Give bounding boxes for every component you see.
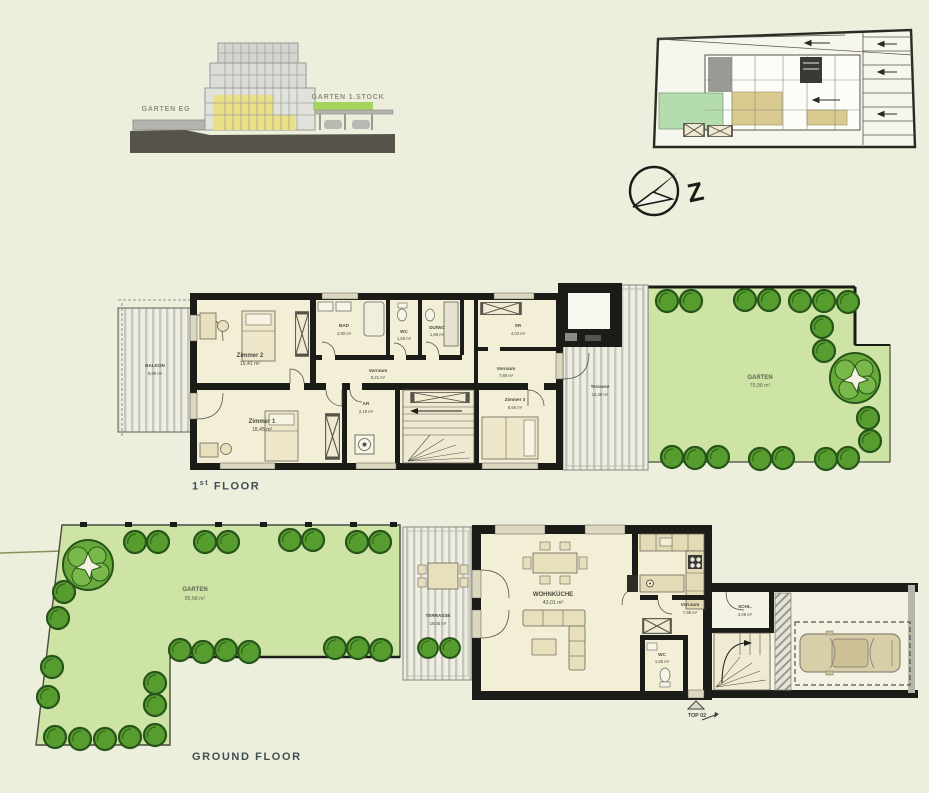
chair bbox=[418, 578, 426, 587]
garten-1stock-label: GARTEN 1.STOCK bbox=[312, 94, 385, 101]
bush-icon bbox=[758, 289, 780, 311]
entrance-marker: TOP 02 bbox=[688, 701, 719, 720]
bush-icon bbox=[440, 638, 460, 658]
ff-stairs bbox=[403, 390, 474, 463]
room-area: 7,89 m² bbox=[499, 373, 514, 378]
bush-icon bbox=[680, 290, 702, 312]
bush-icon bbox=[789, 290, 811, 312]
parked-car-silhouette bbox=[352, 120, 370, 129]
ff-balcony: BALKON 9,98 m² bbox=[118, 300, 192, 437]
ff-apartment: Zimmer 2 15,41 m² Zimmer 1 18,45 m² BAD … bbox=[190, 293, 589, 470]
shower bbox=[444, 302, 458, 346]
toilet bbox=[398, 309, 407, 321]
ground-floor-title: GROUND FLOOR bbox=[192, 751, 302, 763]
bush-icon bbox=[238, 641, 260, 663]
car-icon bbox=[800, 631, 900, 675]
carport-wing bbox=[313, 102, 393, 130]
bush-icon bbox=[656, 290, 678, 312]
chair bbox=[218, 321, 229, 332]
room-area: 1,88 m² bbox=[430, 332, 445, 337]
tree-icon bbox=[830, 353, 880, 403]
room-area: 43,01 m² bbox=[543, 600, 564, 606]
bush-icon bbox=[661, 446, 683, 468]
chair bbox=[523, 557, 531, 569]
north-letter: Z bbox=[684, 176, 706, 209]
site-storage-box bbox=[684, 124, 704, 137]
bush-icon bbox=[772, 447, 794, 469]
bush-icon bbox=[813, 340, 835, 362]
stair-void-box bbox=[412, 392, 467, 402]
bush-icon bbox=[194, 531, 216, 553]
bush-icon bbox=[749, 448, 771, 470]
room-label: Vorraum bbox=[681, 602, 700, 607]
bush-icon bbox=[857, 407, 879, 429]
chair bbox=[221, 444, 232, 455]
site-unit-highlight-2 bbox=[807, 110, 847, 125]
bush-icon bbox=[418, 638, 438, 658]
garten-eg-label: GARTEN EG bbox=[142, 106, 191, 113]
room-label: Terrasse bbox=[591, 384, 610, 389]
entrance-label: TOP 02 bbox=[688, 713, 706, 719]
sofa bbox=[523, 610, 585, 626]
room-label: Zimmer 1 bbox=[249, 419, 276, 425]
site-stair-core bbox=[800, 57, 822, 83]
room-area: 16,05 m² bbox=[430, 621, 447, 626]
room-area: 85,68 m² bbox=[185, 596, 206, 602]
unit-highlight-yellow bbox=[213, 95, 273, 130]
building-section-elevation: GARTEN EG GARTEN 1.STOCK bbox=[130, 35, 395, 155]
bush-icon bbox=[69, 728, 91, 750]
site-plan bbox=[645, 25, 925, 155]
bush-icon bbox=[811, 316, 833, 338]
bush-icon bbox=[192, 641, 214, 663]
bush-icon bbox=[684, 447, 706, 469]
room-label: Zimmer 3 bbox=[505, 397, 526, 402]
room-area: 3,08 m² bbox=[738, 612, 753, 617]
chair bbox=[560, 542, 570, 550]
room-area: 18,45 m² bbox=[252, 427, 273, 433]
bush-icon bbox=[94, 728, 116, 750]
sofa bbox=[569, 626, 585, 670]
room-area: 14,38 m² bbox=[592, 392, 609, 397]
wardrobe bbox=[643, 619, 671, 634]
bush-icon bbox=[41, 656, 63, 678]
ff-terrace: Terrasse 14,38 m² bbox=[558, 283, 648, 470]
room-area: 9,98 m² bbox=[148, 371, 163, 376]
room-label: SCHL. bbox=[738, 604, 752, 609]
site-unit-highlight bbox=[732, 92, 782, 125]
bush-icon bbox=[147, 531, 169, 553]
ground-floor-plan: GARTEN 85,68 m² bbox=[0, 515, 929, 770]
washbasin bbox=[647, 643, 657, 650]
ground-section bbox=[130, 130, 395, 153]
wardrobe bbox=[482, 303, 521, 315]
room-area: 8,66 m² bbox=[508, 405, 523, 410]
room-label: Vorraum bbox=[497, 366, 516, 371]
room-label: Vorraum bbox=[369, 368, 388, 373]
bush-icon bbox=[37, 686, 59, 708]
bush-icon bbox=[324, 637, 346, 659]
chair bbox=[540, 542, 550, 550]
gf-garden: GARTEN 85,68 m² bbox=[0, 522, 400, 750]
bush-icon bbox=[859, 430, 881, 452]
room-area: 9,21 m² bbox=[371, 375, 386, 380]
gf-terrace: TERRASSE 16,05 m² bbox=[403, 527, 472, 680]
bush-icon bbox=[279, 529, 301, 551]
bush-icon bbox=[144, 672, 166, 694]
room-area: 15,41 m² bbox=[240, 361, 261, 367]
driveway-ramp bbox=[775, 593, 791, 690]
parked-car-silhouette bbox=[324, 120, 342, 129]
north-arrow-light bbox=[633, 192, 672, 207]
site-gray-block bbox=[708, 57, 732, 92]
chair bbox=[540, 576, 550, 584]
wardrobe bbox=[326, 415, 340, 458]
north-compass: Z bbox=[620, 155, 730, 225]
bush-icon bbox=[124, 531, 146, 553]
bush-icon bbox=[815, 448, 837, 470]
gf-apartment: WOHNKÜCHE 43,01 m² bbox=[472, 525, 918, 720]
bush-icon bbox=[144, 694, 166, 716]
dining-table bbox=[533, 553, 577, 573]
bush-icon bbox=[734, 289, 756, 311]
roof-garden-bar bbox=[313, 102, 373, 110]
bush-icon bbox=[347, 637, 369, 659]
first-floor-title: 1st FLOOR bbox=[192, 480, 260, 493]
room-label: WC bbox=[400, 329, 408, 334]
bush-icon bbox=[369, 531, 391, 553]
desk bbox=[200, 313, 216, 339]
chair bbox=[579, 557, 587, 569]
room-area: 75,98 m² bbox=[750, 383, 771, 389]
bush-icon bbox=[346, 531, 368, 553]
room-label: SR bbox=[515, 323, 522, 328]
building-mass bbox=[205, 43, 315, 130]
site-storage-box bbox=[708, 125, 732, 136]
bush-icon bbox=[47, 607, 69, 629]
room-label: GARTEN bbox=[747, 375, 772, 381]
floorplan-sheet: GARTEN EG GARTEN 1.STOCK Z bbox=[0, 0, 929, 793]
room-label: WOHNKÜCHE bbox=[533, 591, 573, 598]
bush-icon bbox=[53, 581, 75, 603]
bush-icon bbox=[144, 724, 166, 746]
gf-stairs bbox=[714, 633, 770, 690]
room-label: AR bbox=[363, 401, 370, 406]
room-area: 4,04 m² bbox=[511, 331, 526, 336]
bush-icon bbox=[302, 529, 324, 551]
bush-icon bbox=[707, 446, 729, 468]
room-area: 2,18 m² bbox=[359, 409, 374, 414]
room-label: BALKON bbox=[145, 363, 165, 368]
sink bbox=[660, 538, 672, 546]
room-area: 7,95 m² bbox=[683, 610, 698, 615]
room-label: DU/WC bbox=[429, 325, 445, 330]
toilet bbox=[426, 309, 435, 321]
washbasin bbox=[318, 302, 333, 311]
room-area: 1,65 m² bbox=[397, 336, 412, 341]
bush-icon bbox=[44, 726, 66, 748]
room-area: 4,90 m² bbox=[337, 331, 352, 336]
bush-icon bbox=[169, 639, 191, 661]
washbasin bbox=[336, 302, 351, 311]
chair bbox=[560, 576, 570, 584]
room-label: BAD bbox=[339, 323, 350, 328]
room-label: GARTEN bbox=[182, 587, 207, 593]
room-label: TERRASSE bbox=[425, 613, 450, 618]
bush-icon bbox=[813, 290, 835, 312]
chair bbox=[418, 565, 426, 574]
chair bbox=[460, 578, 468, 587]
desk bbox=[200, 443, 218, 457]
room-label: WC bbox=[658, 652, 666, 657]
coffee-table bbox=[532, 639, 556, 655]
room-label: Zimmer 2 bbox=[237, 353, 264, 359]
bush-icon bbox=[837, 447, 859, 469]
bush-icon bbox=[217, 531, 239, 553]
chair bbox=[460, 565, 468, 574]
bathtub bbox=[364, 302, 384, 336]
terrace-table bbox=[428, 563, 458, 589]
fridge bbox=[627, 575, 638, 592]
toilet bbox=[660, 668, 670, 682]
room-area: 1,65 m² bbox=[655, 659, 670, 664]
garden-wall bbox=[133, 120, 213, 130]
property-line bbox=[0, 551, 62, 553]
ff-garden: GARTEN 75,98 m² bbox=[648, 287, 890, 470]
bush-icon bbox=[370, 639, 392, 661]
wardrobe bbox=[296, 313, 309, 355]
bush-icon bbox=[119, 726, 141, 748]
bush-icon bbox=[215, 639, 237, 661]
first-floor-plan: GARTEN 75,98 m² bbox=[110, 275, 900, 490]
bush-icon bbox=[837, 291, 859, 313]
